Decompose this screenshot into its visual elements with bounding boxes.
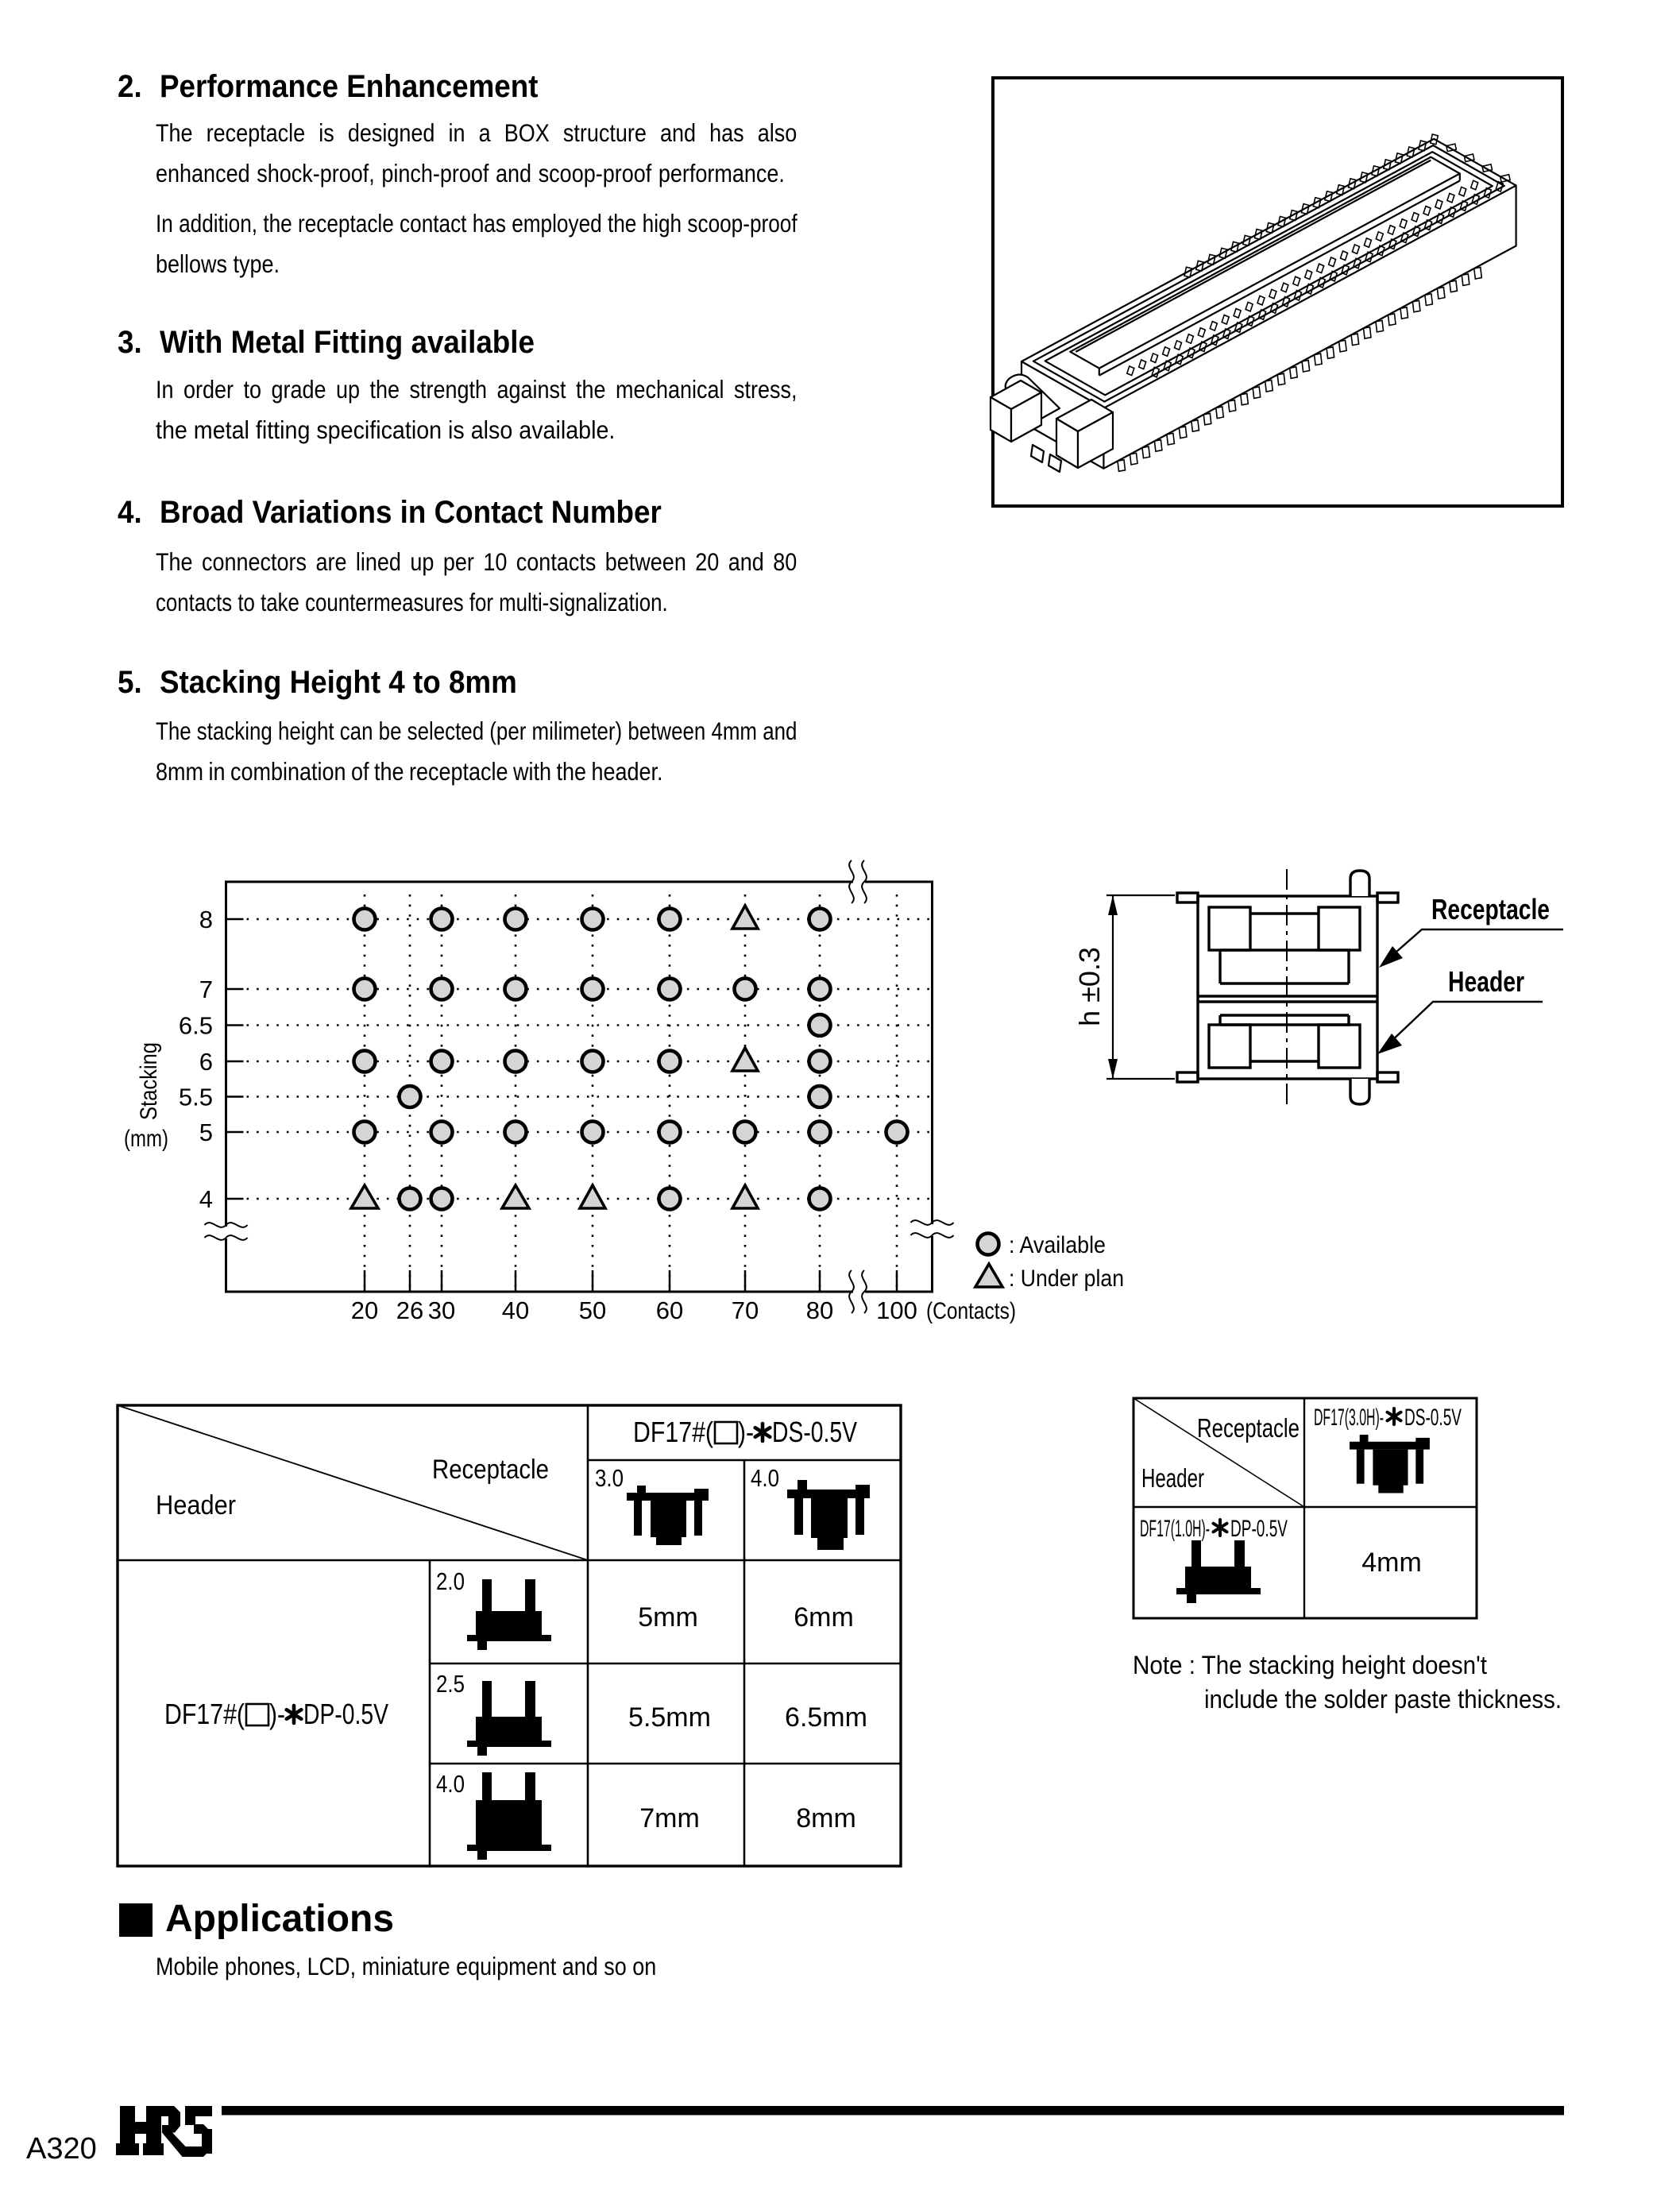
svg-text:Receptacle: Receptacle [1431, 893, 1550, 925]
svg-text:Header: Header [1141, 1463, 1204, 1493]
svg-text:DS-0.5V: DS-0.5V [1404, 1405, 1462, 1431]
svg-text:3.0: 3.0 [595, 1464, 624, 1492]
svg-text:100: 100 [876, 1296, 917, 1324]
svg-text:Note : The stacking height doe: Note : The stacking height doesn't [1133, 1651, 1487, 1679]
svg-text:2.0: 2.0 [436, 1567, 465, 1595]
svg-text:6.5mm: 6.5mm [785, 1702, 867, 1733]
svg-text:20: 20 [351, 1296, 378, 1324]
svg-text:include the solder paste thick: include the solder paste thickness. [1204, 1685, 1562, 1714]
svg-text:6: 6 [199, 1048, 213, 1076]
svg-text:Receptacle: Receptacle [432, 1455, 549, 1485]
svg-text:5mm: 5mm [638, 1602, 698, 1633]
svg-text:26: 26 [396, 1296, 423, 1324]
svg-text:5.5: 5.5 [179, 1084, 213, 1111]
svg-text:4: 4 [199, 1185, 213, 1213]
svg-text:4mm: 4mm [1361, 1548, 1422, 1578]
svg-text:50: 50 [579, 1296, 606, 1324]
svg-text:)-: )- [269, 1698, 285, 1730]
svg-text:6.5: 6.5 [179, 1012, 213, 1040]
svg-text:Header: Header [156, 1490, 236, 1520]
svg-text:h ±0.3: h ±0.3 [1073, 947, 1106, 1026]
svg-text:Header: Header [1448, 965, 1524, 998]
svg-text:40: 40 [502, 1296, 529, 1324]
svg-text:6mm: 6mm [794, 1602, 854, 1633]
svg-text:DP-0.5V: DP-0.5V [1230, 1516, 1288, 1542]
svg-text:8mm: 8mm [796, 1803, 856, 1833]
svg-text:DF17#(: DF17#( [633, 1416, 713, 1448]
svg-text:8: 8 [199, 906, 213, 933]
svg-text:5.5mm: 5.5mm [628, 1702, 711, 1733]
svg-text:Receptacle: Receptacle [1197, 1413, 1300, 1443]
svg-text:DF17(1.0H)-: DF17(1.0H)- [1140, 1516, 1210, 1542]
svg-text:7mm: 7mm [639, 1803, 700, 1833]
svg-text:4.0: 4.0 [436, 1770, 465, 1798]
svg-text:)-: )- [738, 1416, 754, 1448]
svg-text:60: 60 [656, 1296, 683, 1324]
svg-text:Applications: Applications [165, 1898, 394, 1940]
svg-text:DP-0.5V: DP-0.5V [303, 1698, 388, 1730]
svg-text:: Available: : Available [1009, 1232, 1106, 1258]
svg-text:A320: A320 [26, 2132, 97, 2166]
svg-text:4.0: 4.0 [751, 1464, 779, 1492]
svg-text:80: 80 [806, 1296, 833, 1324]
svg-text:(Contacts): (Contacts) [926, 1298, 1016, 1324]
svg-text:: Under plan: : Under plan [1009, 1265, 1124, 1292]
svg-text:(mm): (mm) [124, 1126, 168, 1152]
svg-text:5: 5 [199, 1119, 213, 1146]
svg-text:2.5: 2.5 [436, 1670, 465, 1698]
svg-text:70: 70 [732, 1296, 759, 1324]
svg-text:7: 7 [199, 976, 213, 1003]
svg-text:DS-0.5V: DS-0.5V [772, 1416, 857, 1448]
svg-text:Stacking: Stacking [136, 1042, 162, 1120]
svg-text:DF17#(: DF17#( [164, 1698, 245, 1730]
svg-text:DF17(3.0H)-: DF17(3.0H)- [1314, 1405, 1384, 1431]
svg-text:30: 30 [428, 1296, 455, 1324]
